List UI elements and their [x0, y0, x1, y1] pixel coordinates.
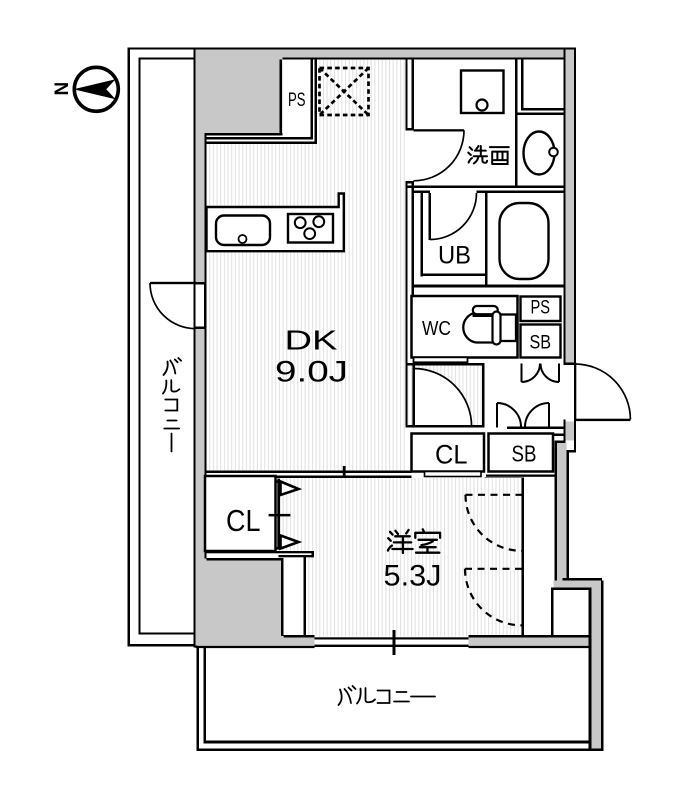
- svg-text:CL: CL: [226, 503, 261, 538]
- svg-text:UB: UB: [438, 242, 471, 270]
- svg-text:WC: WC: [422, 318, 451, 340]
- svg-text:PS: PS: [531, 298, 551, 319]
- svg-text:SB: SB: [530, 333, 552, 354]
- svg-text:CL: CL: [435, 440, 468, 470]
- svg-text:SB: SB: [512, 441, 537, 467]
- svg-text:N: N: [52, 82, 73, 96]
- svg-text:5.3J: 5.3J: [384, 560, 442, 593]
- svg-text:DK: DK: [285, 325, 338, 356]
- svg-text:PS: PS: [288, 90, 306, 111]
- svg-text:9.0J: 9.0J: [275, 356, 348, 389]
